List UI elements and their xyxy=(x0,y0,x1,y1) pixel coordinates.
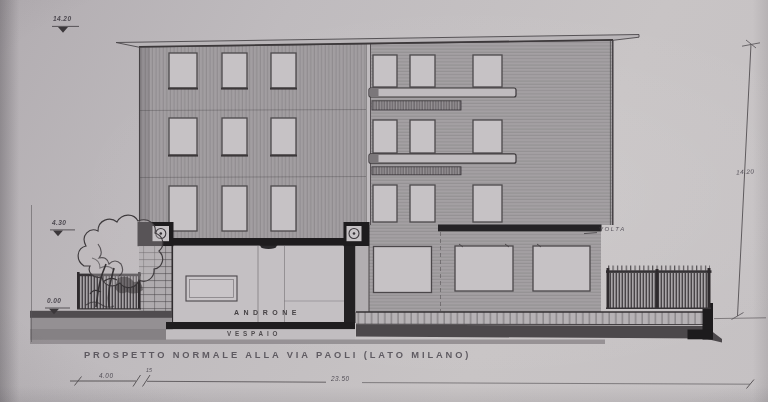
window xyxy=(410,120,435,153)
balcony-slab xyxy=(369,88,516,97)
dim-left-offset: 4.00 xyxy=(99,372,113,379)
window xyxy=(373,55,397,87)
balcony-slab xyxy=(369,154,516,163)
expansion-joint xyxy=(366,43,370,239)
window xyxy=(473,55,502,87)
drawing-title: PROSPETTO NORMALE ALLA VIA PAOLI (LATO M… xyxy=(84,350,471,360)
cut-wall-right xyxy=(344,246,356,323)
level-triangle xyxy=(53,231,63,237)
left-facade-windows xyxy=(168,53,297,231)
window xyxy=(473,120,502,153)
window xyxy=(473,185,502,222)
level-label-street: 0.00 xyxy=(47,297,61,304)
androne-label: ANDRONE xyxy=(234,309,301,316)
window xyxy=(271,53,296,88)
window xyxy=(373,120,397,153)
portico-opening xyxy=(455,246,513,291)
right-fence xyxy=(606,266,712,310)
window xyxy=(410,185,435,222)
window xyxy=(271,118,296,155)
floor-slab-cut xyxy=(166,322,355,329)
window xyxy=(271,186,296,231)
level-triangle xyxy=(58,27,68,33)
cut-beam xyxy=(172,238,346,246)
level-label-roof: 14.20 xyxy=(53,15,72,22)
window xyxy=(222,186,247,231)
level-label-first-floor: 4.30 xyxy=(52,219,66,226)
elevation-drawing xyxy=(0,0,768,402)
window xyxy=(222,118,247,155)
dim-facade-length: 23.50 xyxy=(331,375,350,382)
portico-opening xyxy=(533,246,590,291)
height-dimension-line xyxy=(732,40,761,320)
street-level-band xyxy=(30,311,172,318)
level-markers xyxy=(45,26,79,314)
scanned-elevation-photo: 14.20 4.30 0.00 VOLTA ANDRONE VESPAIO 14… xyxy=(0,0,768,402)
ground-floor-right xyxy=(368,225,602,313)
dim-wall-thickness: 15 xyxy=(146,367,152,373)
portico-opening xyxy=(374,247,432,293)
window xyxy=(222,53,247,88)
window xyxy=(373,185,397,222)
window xyxy=(169,118,197,155)
vespaio-label: VESPAIO xyxy=(227,330,281,337)
bottom-dimension-line xyxy=(70,375,754,389)
volta-label: VOLTA xyxy=(599,226,626,232)
wall-edge-shade xyxy=(139,47,150,240)
volta-beam xyxy=(438,225,602,232)
window xyxy=(169,53,197,88)
window xyxy=(410,55,435,87)
dim-total-height: 14.20 xyxy=(736,167,755,175)
